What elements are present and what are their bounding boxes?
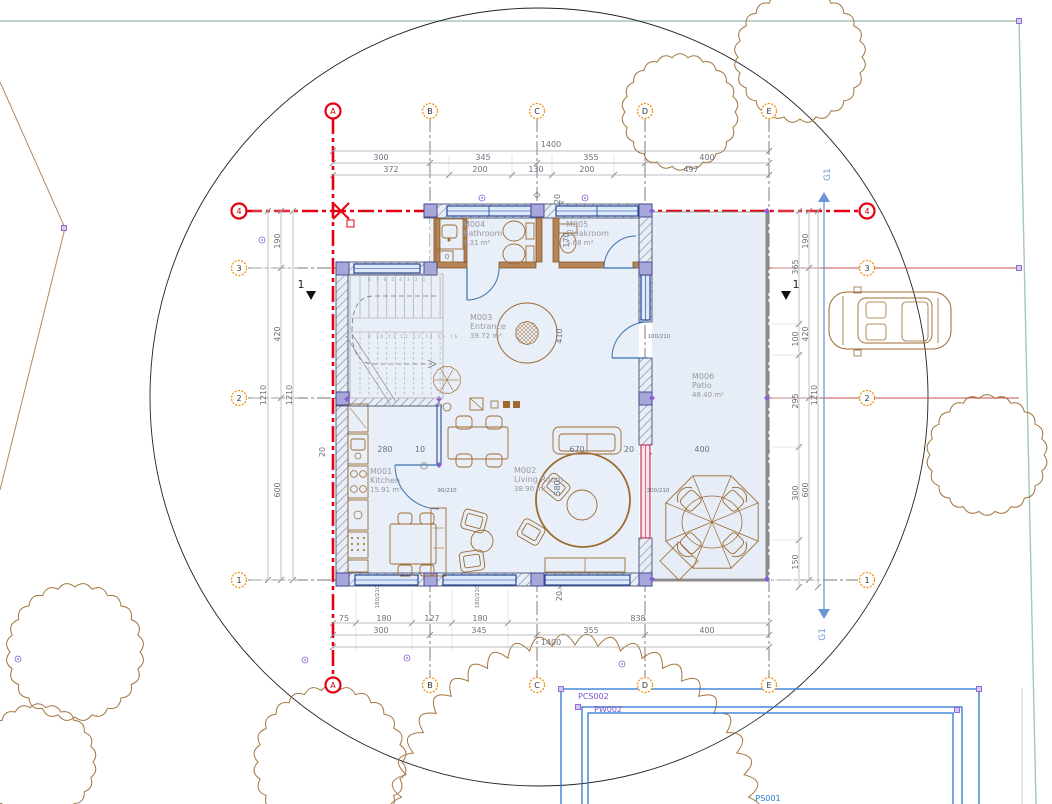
- dimension-label: 127: [424, 614, 439, 623]
- dimension-label: 400: [694, 445, 709, 454]
- grid-bubble-label: 4: [236, 207, 241, 216]
- car-body: [829, 292, 951, 349]
- dimension-label: 300: [791, 485, 800, 500]
- grid-bubble-label: 2: [236, 394, 241, 403]
- dimension-label: 365: [791, 259, 800, 274]
- grid-bubble-C[interactable]: C: [530, 104, 545, 119]
- grid-bubble-E[interactable]: E: [762, 678, 777, 693]
- section-mark-arrow: [306, 291, 316, 300]
- selection-handle[interactable]: [576, 705, 581, 710]
- snap-marker: [619, 661, 625, 667]
- dimension-label: 190: [801, 233, 810, 248]
- dimension-label: 400: [699, 153, 714, 162]
- grid-bubble-A[interactable]: A: [326, 104, 341, 119]
- dimension-label: 420: [801, 326, 810, 341]
- dot: [357, 549, 359, 551]
- dimension-label: 1400: [541, 638, 561, 647]
- grid-bubble-label: C: [534, 681, 540, 690]
- car-seat: [902, 302, 928, 341]
- dimension-label: 130: [528, 165, 543, 174]
- room-name: Cloakroom: [566, 229, 609, 238]
- selection-handle[interactable]: [559, 687, 564, 692]
- pool-rect-outer[interactable]: [561, 689, 979, 804]
- dimension-label: 670: [569, 445, 584, 454]
- dimension-label: 75: [339, 614, 349, 623]
- room-id: M004: [463, 220, 485, 229]
- window-size-tag: 180/210: [475, 585, 481, 608]
- partition-wall: [434, 262, 467, 268]
- grid-bubble-4[interactable]: 4: [860, 204, 875, 219]
- dot: [351, 549, 353, 551]
- dot: [357, 543, 359, 545]
- grid-bubble-A[interactable]: A: [326, 678, 341, 693]
- dimension-label: 280: [377, 445, 392, 454]
- grid-bubble-label: C: [534, 107, 540, 116]
- pool-rect-mid[interactable]: [582, 707, 962, 804]
- drain: [448, 239, 451, 242]
- dimension-label: 100: [791, 331, 800, 346]
- dimension-label: 1210: [810, 385, 819, 405]
- dimension-label: 295: [791, 393, 800, 408]
- car-cabin: [858, 298, 932, 343]
- dimension-label: 410: [555, 328, 564, 343]
- dot: [363, 537, 365, 539]
- snap-marker: [479, 195, 485, 201]
- grid-bubble-D[interactable]: D: [638, 104, 653, 119]
- selection-handle[interactable]: [1017, 266, 1022, 271]
- partition-wall: [499, 262, 536, 268]
- dimension-label: 600: [801, 482, 810, 497]
- column: [424, 262, 437, 275]
- grid-bubble-B[interactable]: B: [423, 678, 438, 693]
- room-id: M003: [470, 313, 492, 322]
- fixture-label: 0: [445, 253, 449, 261]
- partition-wall: [559, 262, 604, 268]
- g1-arrow: [818, 609, 830, 619]
- car-seat: [866, 324, 886, 340]
- grid-bubble-C[interactable]: C: [530, 678, 545, 693]
- section-mark-label: 1: [793, 278, 800, 291]
- grid-bubble-1[interactable]: 1: [232, 573, 247, 588]
- room-id: M002: [514, 466, 536, 475]
- grid-bubble-D[interactable]: D: [638, 678, 653, 693]
- tree: [0, 704, 96, 804]
- column: [336, 262, 349, 275]
- axis-origin-marker: [347, 220, 354, 227]
- room-id: M005: [566, 220, 588, 229]
- dimension-label: 600: [273, 482, 282, 497]
- dimension-label: 300: [373, 153, 388, 162]
- dimension-label: 345: [471, 626, 486, 635]
- cad-canvas[interactable]: G1G1PCS002PW002PS00114003003453554003722…: [0, 0, 1052, 804]
- selection-handle[interactable]: [977, 687, 982, 692]
- window-size-tag: 300/210: [647, 488, 670, 494]
- dimension-label: 200: [472, 165, 487, 174]
- grid-bubble-label: B: [427, 107, 433, 116]
- window-size-tag: 180/210: [375, 585, 381, 608]
- decor-box: [513, 401, 520, 408]
- tree: [735, 0, 866, 122]
- column: [336, 573, 349, 586]
- grid-bubble-label: D: [642, 681, 648, 690]
- dot: [351, 543, 353, 545]
- dimension-label: 190: [273, 233, 282, 248]
- room-area: 5.68 m²: [566, 239, 594, 247]
- dot: [351, 537, 353, 539]
- window-size-tag: 100/210: [648, 334, 671, 340]
- decor-box: [503, 401, 510, 408]
- snap-marker: [582, 195, 588, 201]
- column: [424, 204, 437, 217]
- dimension-label: 180: [376, 614, 391, 623]
- column: [639, 262, 652, 275]
- grid-bubble-label: B: [427, 681, 433, 690]
- partition-wall: [434, 218, 440, 262]
- g1-label: G1: [823, 168, 833, 181]
- grid-bubble-label: E: [766, 681, 771, 690]
- grid-bubble-E[interactable]: E: [762, 104, 777, 119]
- room-area: 38.90 m²: [514, 485, 546, 493]
- wall: [336, 262, 348, 586]
- section-mark-arrow: [781, 291, 791, 300]
- room-area: 39.72 m²: [470, 332, 502, 340]
- tree: [254, 686, 406, 804]
- grid-bubble-label: 2: [864, 394, 869, 403]
- room-area: 48.40 m²: [692, 391, 724, 399]
- grid-bubble-1[interactable]: 1: [860, 573, 875, 588]
- section-mark-label: 1: [298, 278, 305, 291]
- grid-bubble-label: 1: [236, 576, 241, 585]
- snap-marker: [15, 656, 21, 662]
- dimension-label: 400: [699, 626, 714, 635]
- column: [531, 573, 544, 586]
- potted-plant: [516, 322, 538, 345]
- pool-label: PCS002: [578, 692, 609, 701]
- room-name: Kitchen: [370, 476, 400, 485]
- pool-label: PS001: [755, 794, 780, 803]
- dimension-label: 20: [318, 447, 327, 457]
- snap-marker: [302, 657, 308, 663]
- dimension-label: 180: [472, 614, 487, 623]
- room-name: Patio: [692, 381, 712, 390]
- dimension-label: 300: [373, 626, 388, 635]
- grid-bubble-B[interactable]: B: [423, 104, 438, 119]
- grid-bubble-2[interactable]: 2: [860, 391, 875, 406]
- room-name: Bathroom: [463, 229, 503, 238]
- column: [531, 204, 544, 217]
- tree: [7, 584, 144, 721]
- grid-bubble-label: E: [766, 107, 771, 116]
- grid-bubble-3[interactable]: 3: [860, 261, 875, 276]
- grid-bubble-label: A: [330, 107, 336, 116]
- dimension-label: 1210: [259, 385, 268, 405]
- g1-line: G1G1: [818, 168, 833, 640]
- stair-numbers: 8 7 6 5 4 3 2 1: [368, 277, 427, 282]
- dimension-label: 1400: [541, 140, 561, 149]
- dimension-label: 497: [683, 165, 698, 174]
- dimension-label: 838: [630, 614, 645, 623]
- grid-bubble-3[interactable]: 3: [232, 261, 247, 276]
- dimension-label: 10: [415, 445, 425, 454]
- dimension-label: 345: [475, 153, 490, 162]
- car-seat: [866, 302, 886, 318]
- grid-bubble-2[interactable]: 2: [232, 391, 247, 406]
- floor-plan-drawing[interactable]: G1G1PCS002PW002PS00114003003453554003722…: [0, 0, 1052, 804]
- dot: [363, 549, 365, 551]
- room-id: M006: [692, 372, 714, 381]
- partition-wall: [553, 218, 559, 262]
- wall: [336, 398, 439, 406]
- room-id: M001: [370, 467, 392, 476]
- dimension-label: 20: [553, 194, 562, 204]
- snap-marker: [259, 237, 265, 243]
- dimension-label: 372: [383, 165, 398, 174]
- dimension-label: 20: [624, 445, 634, 454]
- tree: [389, 634, 761, 804]
- grid-bubble-label: 1: [864, 576, 869, 585]
- window-size-tag: 90/210: [437, 488, 457, 494]
- grid-bubble-label: 4: [864, 207, 869, 216]
- grid-bubble-4[interactable]: 4: [232, 204, 247, 219]
- pool-structure: PCS002PW002PS001: [561, 689, 979, 804]
- grid-bubble-label: 3: [864, 264, 869, 273]
- snap-marker: [404, 655, 410, 661]
- room-name: Living Room: [514, 475, 563, 484]
- dimension-label: 20: [555, 591, 564, 601]
- room-name: Entrance: [470, 322, 506, 331]
- car: [829, 287, 951, 356]
- dot: [357, 537, 359, 539]
- dot: [363, 543, 365, 545]
- partition-wall: [633, 262, 639, 268]
- partition-wall: [536, 218, 542, 262]
- dimension-label: 355: [583, 153, 598, 162]
- grid-bubble-label: 3: [236, 264, 241, 273]
- property-line[interactable]: [0, 82, 65, 490]
- grid-bubble-label: D: [642, 107, 648, 116]
- selection-handle[interactable]: [955, 708, 960, 713]
- stair-numbers: 9 10 11 12 13 14 15 16: [368, 334, 459, 339]
- g1-arrow: [818, 192, 830, 202]
- room-area: 15.91 m²: [370, 486, 402, 494]
- dimension-label: 1210: [285, 385, 294, 405]
- selection-handle[interactable]: [62, 226, 67, 231]
- pool-rect-inner[interactable]: [588, 713, 953, 804]
- selection-handle[interactable]: [1017, 19, 1022, 24]
- grid-bubble-label: A: [330, 681, 336, 690]
- room-area: 5.31 m²: [463, 239, 491, 247]
- dimension-label: 150: [791, 554, 800, 569]
- dimension-label: 355: [583, 626, 598, 635]
- column: [424, 573, 437, 586]
- dimension-label: 420: [273, 326, 282, 341]
- car-mirror: [854, 350, 861, 356]
- dimension-label: 200: [579, 165, 594, 174]
- pool-label: PW002: [594, 705, 622, 714]
- g1-label: G1: [818, 628, 828, 641]
